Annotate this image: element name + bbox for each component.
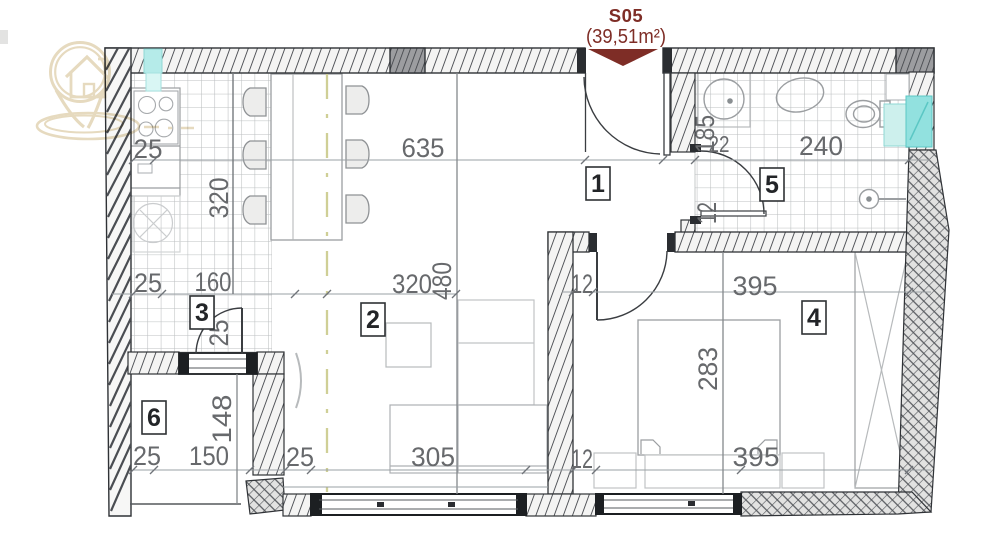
svg-text:S05: S05	[609, 5, 643, 26]
svg-text:5: 5	[765, 171, 779, 199]
svg-text:635: 635	[402, 133, 445, 163]
svg-text:6: 6	[147, 404, 161, 432]
svg-text:305: 305	[411, 442, 455, 472]
svg-text:148: 148	[207, 395, 237, 444]
svg-text:320: 320	[392, 269, 432, 299]
svg-text:395: 395	[733, 271, 778, 301]
svg-text:160: 160	[195, 267, 232, 297]
svg-text:2: 2	[366, 306, 380, 334]
svg-text:12: 12	[571, 269, 593, 299]
svg-text:25: 25	[133, 441, 161, 471]
svg-text:4: 4	[807, 304, 821, 332]
svg-text:1: 1	[591, 170, 605, 198]
svg-text:25: 25	[286, 442, 314, 472]
svg-text:240: 240	[799, 131, 843, 161]
svg-text:150: 150	[189, 441, 229, 471]
svg-text:25: 25	[134, 134, 163, 164]
svg-text:(39,51m²): (39,51m²)	[586, 26, 666, 48]
svg-text:283: 283	[693, 347, 723, 391]
svg-text:3: 3	[195, 299, 209, 327]
svg-text:480: 480	[427, 262, 457, 300]
svg-text:12: 12	[692, 202, 722, 224]
svg-text:12: 12	[571, 444, 593, 474]
svg-text:25: 25	[134, 268, 162, 298]
svg-text:185: 185	[690, 115, 720, 153]
svg-text:320: 320	[204, 178, 234, 219]
svg-text:395: 395	[733, 442, 780, 472]
